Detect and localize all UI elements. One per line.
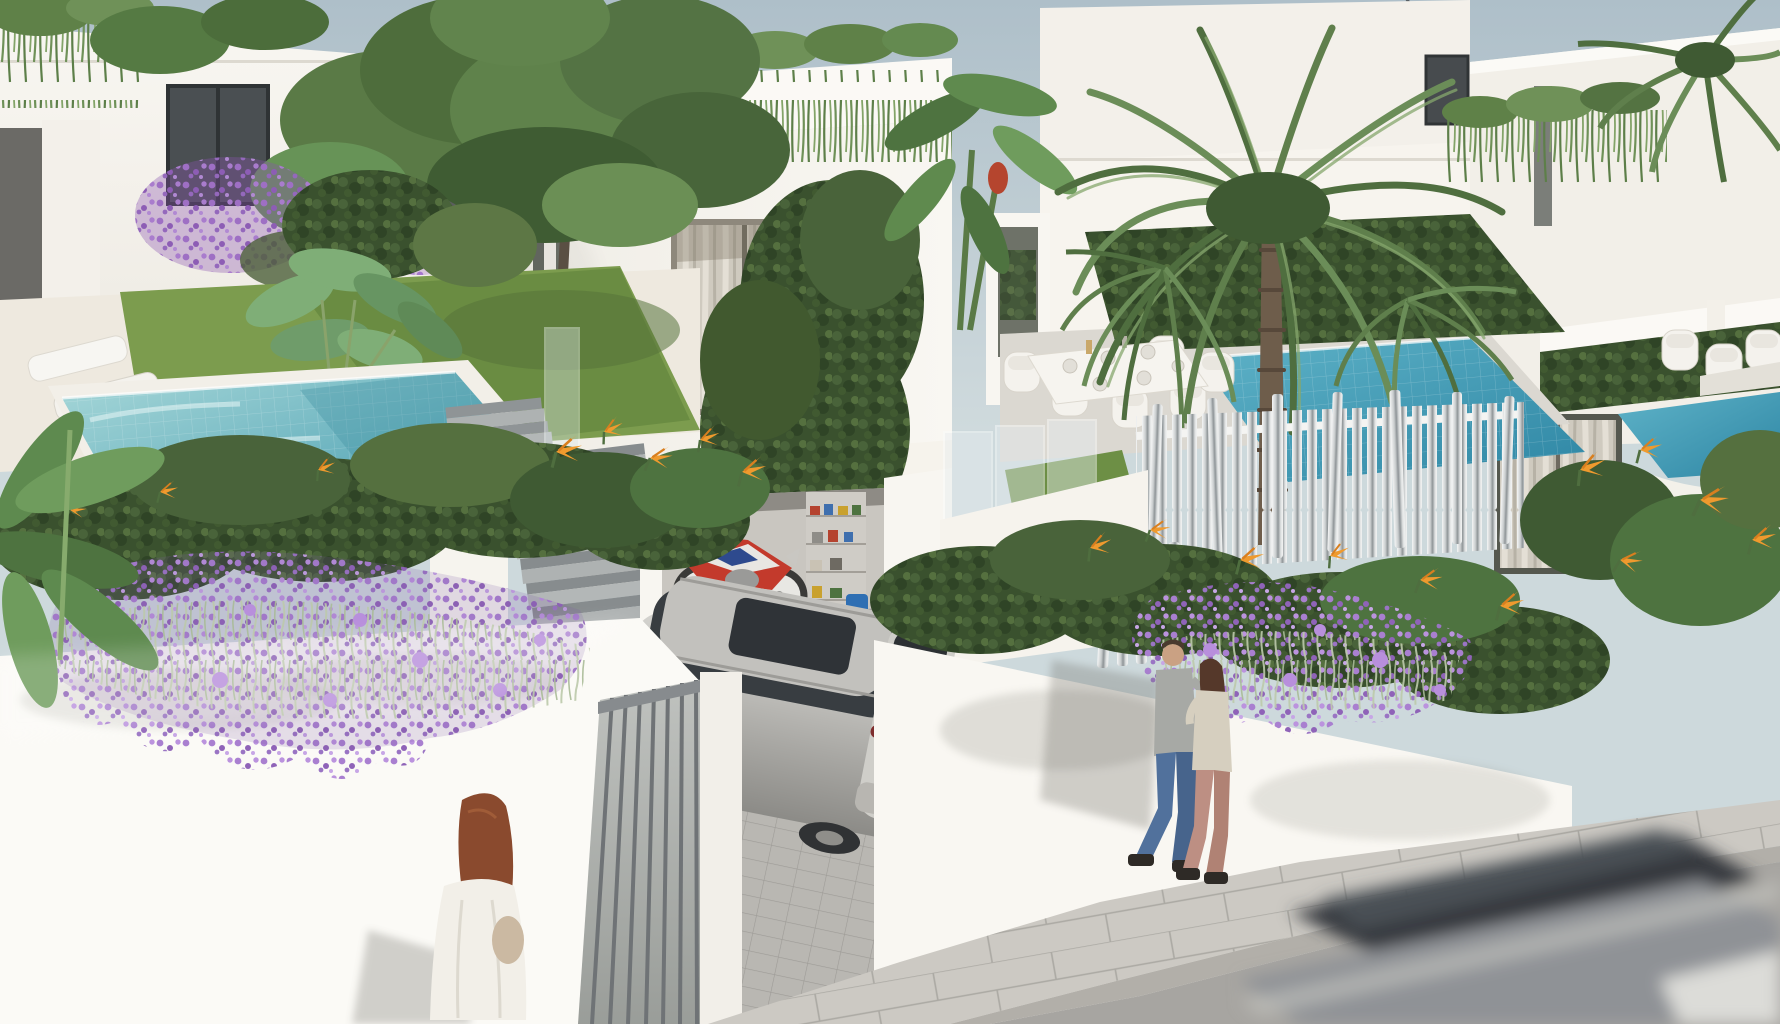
- chrome-picket-fence: [1136, 390, 1524, 572]
- render-canvas: ANH 7852: [0, 0, 1780, 1024]
- villa-render: ANH 7852: [0, 0, 1780, 1024]
- pedestrian-gate: [578, 672, 742, 1024]
- woman-bag: [492, 916, 524, 964]
- bush: [413, 203, 537, 287]
